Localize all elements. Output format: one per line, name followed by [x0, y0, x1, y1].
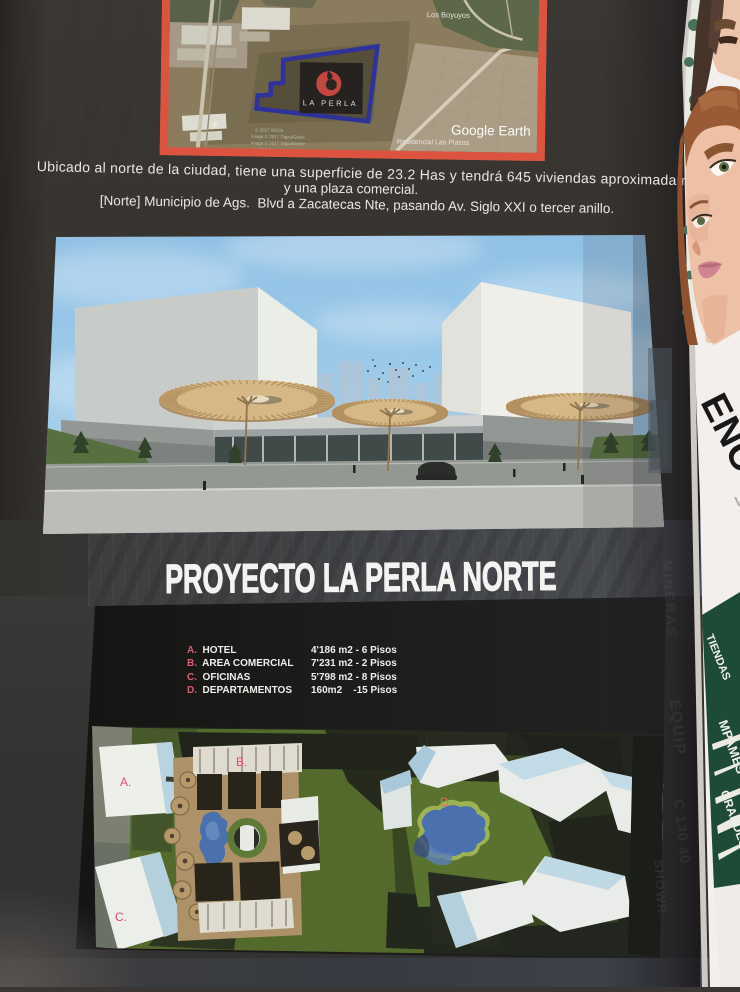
- svg-text:Los Boyuyos: Los Boyuyos: [427, 10, 470, 20]
- svg-text:© 2017 INEGI: © 2017 INEGI: [255, 126, 283, 132]
- svg-text:Residencial Las Plazas: Residencial Las Plazas: [397, 139, 470, 147]
- svg-text:LA PERLA: LA PERLA: [303, 98, 359, 108]
- svg-text:C 130 40: C 130 40: [671, 799, 694, 865]
- svg-text:D.: D.: [440, 795, 452, 809]
- svg-text:Image © 2017 DigitalGlobe: Image © 2017 DigitalGlobe: [251, 133, 306, 140]
- svg-text:Image © 2017 DigitalGlobe: Image © 2017 DigitalGlobe: [251, 139, 306, 146]
- svg-text:C.: C.: [115, 910, 127, 924]
- svg-text:SHOWR: SHOWR: [651, 859, 670, 915]
- svg-text:© 2017 Google: © 2017 Google: [253, 146, 284, 152]
- svg-text:MINERAS: MINERAS: [659, 559, 680, 638]
- svg-text:EQUIP: EQUIP: [666, 699, 689, 757]
- svg-text:Google Earth: Google Earth: [451, 123, 531, 139]
- svg-text:A.: A.: [120, 775, 131, 789]
- svg-text:B.: B.: [236, 755, 247, 769]
